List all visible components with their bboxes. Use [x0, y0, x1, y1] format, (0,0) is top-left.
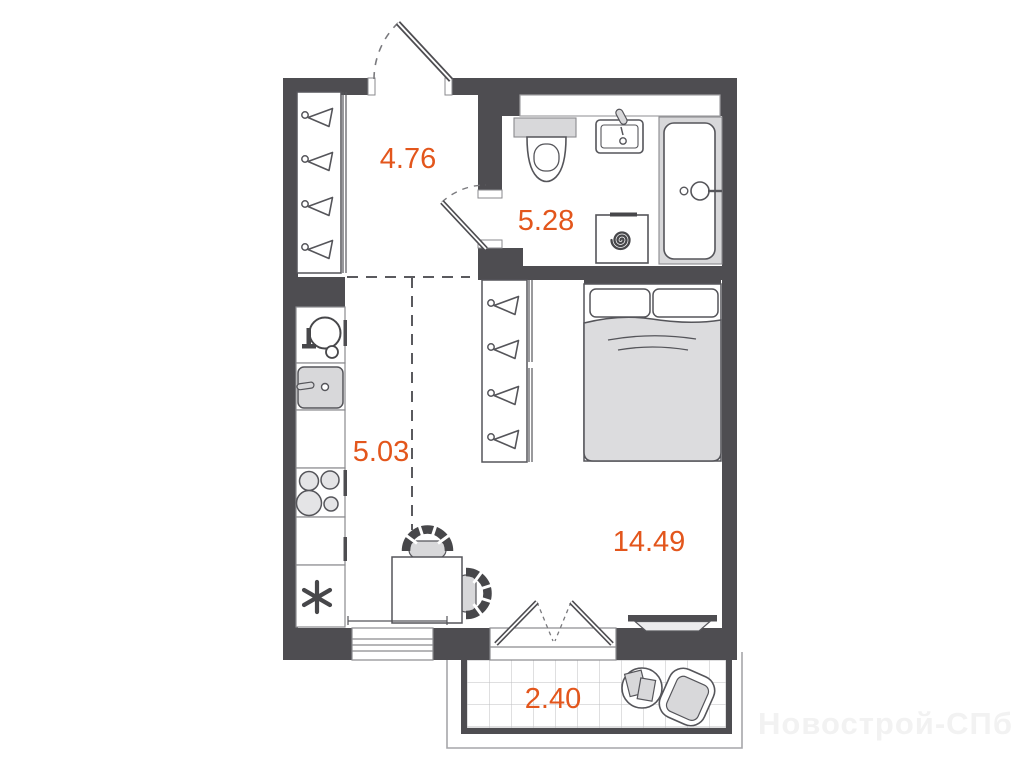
chair-seat [409, 541, 446, 558]
wall-top-bathroom [452, 78, 737, 95]
dining-set [392, 524, 493, 623]
bathroom-area-label: 5.28 [518, 205, 574, 237]
door-leaf-inner [442, 202, 486, 249]
toilet-icon [514, 118, 576, 182]
door-jamb [478, 190, 502, 198]
hob-icon [297, 367, 343, 408]
bathroom-fixtures [514, 95, 722, 264]
balcony-parapet [726, 660, 732, 734]
balcony-area-label: 2.40 [525, 683, 581, 715]
balcony-parapet [461, 728, 732, 734]
wall-kitchen-stub [283, 277, 345, 307]
watermark: Новострой-СПб [758, 706, 1013, 741]
wall-right [722, 78, 737, 660]
bathtub-icon [659, 117, 722, 264]
hallway-area-label: 4.76 [380, 143, 436, 175]
room-divider-dashed [347, 277, 470, 530]
bathroom-door [442, 185, 502, 249]
wall-bottom-middle [433, 628, 490, 660]
wall-bottom-left [283, 628, 352, 660]
entrance-door [368, 23, 452, 95]
floor-plan-page: 4.76 5.28 5.03 14.49 2.40 Новострой-СПб [0, 0, 1023, 768]
wall-bathroom-left [478, 94, 502, 190]
blanket [584, 317, 721, 461]
floor-plan: 4.76 5.28 5.03 14.49 2.40 Новострой-СПб [0, 0, 1023, 768]
kitchen-counter [296, 307, 347, 627]
wall-niche-left [502, 93, 520, 116]
kitchen-area-label: 5.03 [353, 436, 409, 468]
living-room-area-label: 14.49 [613, 526, 686, 558]
balcony-round-table [622, 668, 662, 708]
washing-machine-icon [596, 213, 648, 264]
hallway-wardrobe [297, 92, 346, 273]
pillow [590, 289, 650, 317]
door-jamb [368, 78, 375, 95]
balcony [447, 652, 742, 748]
double-bed [584, 280, 721, 461]
dining-table [392, 557, 462, 623]
balcony-parapet [461, 660, 467, 734]
door-leaf-inner [398, 23, 451, 80]
wall-bottom-right [616, 628, 737, 660]
door-swing-arc [374, 23, 398, 79]
wall-bathroom-bottom [478, 266, 737, 280]
living-room-wardrobe [482, 280, 532, 462]
pillow [653, 289, 718, 317]
balcony-door [490, 602, 616, 660]
